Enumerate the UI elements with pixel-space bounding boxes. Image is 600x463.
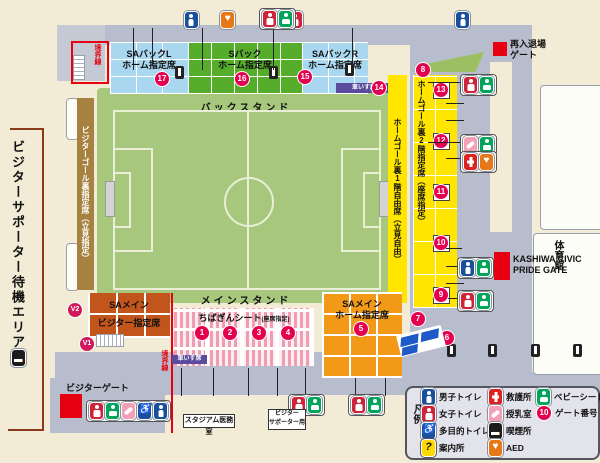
legend-label: 救護所 xyxy=(506,391,532,403)
building xyxy=(540,85,600,230)
legend-item: ベビーシート xyxy=(537,389,600,405)
connector-line xyxy=(446,248,462,249)
legend-item: 喫煙所 xyxy=(489,423,532,439)
toilet-babyseat-group xyxy=(460,74,497,96)
visitor-supporter-room: ビジターサポーター用 xyxy=(268,409,306,430)
connector-line xyxy=(152,28,153,66)
gate-door-icon xyxy=(573,344,582,357)
legend-label: ゲート番号 xyxy=(555,407,598,419)
goal-area-left xyxy=(113,172,131,228)
boundary-line-label-top: 境界線 xyxy=(92,44,102,65)
legend-label: ベビーシート xyxy=(554,391,600,403)
legend-item: AED xyxy=(489,440,524,456)
reentry-gate-marker xyxy=(493,42,507,56)
gate-badge-9: 9 xyxy=(434,288,448,302)
sa-main-visitor-label1: SAメイン xyxy=(88,298,170,311)
visitor-waiting-area-label: ビジターサポーター待機エリア xyxy=(8,140,27,365)
gate-badge-13: 13 xyxy=(434,83,448,97)
gate-badge-16: 16 xyxy=(235,72,249,86)
sa-main-visitor-label2: ビジター指定席 xyxy=(88,316,170,329)
home-goal-1f-label: ホームゴール裏1階自由席（立見自由） xyxy=(392,80,403,300)
gate-door-icon xyxy=(345,63,354,76)
mens-toilet-icon xyxy=(461,260,474,276)
boundary-line-label-bottom: 境界線 xyxy=(159,350,169,371)
goal-left xyxy=(105,181,115,217)
toilet-babyseat-group xyxy=(457,257,494,279)
gate-number-badge: 10 xyxy=(537,406,551,420)
pitch xyxy=(113,110,381,290)
connector-line xyxy=(305,368,306,396)
gate-badge-4: 4 xyxy=(281,326,295,340)
legend-item: 救護所 xyxy=(489,389,532,405)
first-aid-icon xyxy=(464,154,477,170)
gate-badge-v2: V2 xyxy=(68,303,82,317)
multipurpose-toilet-icon xyxy=(422,423,435,439)
gate-badge-1: 1 xyxy=(195,326,209,340)
mens-toilet-icon xyxy=(154,403,167,419)
connector-line xyxy=(181,368,182,396)
connector-line xyxy=(446,283,464,284)
information-icon xyxy=(422,440,435,456)
aed-icon xyxy=(480,154,493,170)
reentry-gate-label2: ゲート xyxy=(510,48,537,61)
multipurpose-toilet-icon xyxy=(138,403,151,419)
gate-badge-12: 12 xyxy=(434,134,448,148)
connector-line xyxy=(446,120,464,121)
pitch-center-circle xyxy=(224,177,274,227)
waiting-area-border xyxy=(42,128,44,431)
gate-door-icon xyxy=(488,344,497,357)
baby-seat-icon xyxy=(480,77,493,93)
firstaid-aed-group xyxy=(460,151,497,173)
legend-item: 10ゲート番号 xyxy=(537,406,598,420)
visitor-supporter-label2: サポーター用 xyxy=(269,420,305,426)
kashiwa-gate-label2: PRIDE GATE xyxy=(513,265,567,275)
connector-line xyxy=(428,142,462,143)
waiting-area-border-bottom xyxy=(8,429,44,431)
baby-seat-icon xyxy=(308,397,321,413)
baby-seat-icon xyxy=(368,397,381,413)
mens-toilet-icon xyxy=(456,12,469,28)
connector-line xyxy=(213,368,214,396)
legend-label: 授乳室 xyxy=(506,408,532,420)
toilet-babyseat-group xyxy=(457,290,494,312)
chibagin-label1: ちばぎんシート xyxy=(198,313,261,323)
stairs-main xyxy=(96,334,124,347)
gate-badge-v1: V1 xyxy=(80,337,94,351)
baby-seat-icon xyxy=(537,389,550,405)
nursing-room-icon xyxy=(489,406,502,422)
visitor-gate-icons xyxy=(86,400,171,422)
baby-seat-icon xyxy=(477,293,490,309)
baby-seat-icon xyxy=(106,403,119,419)
visitor-gate-marker xyxy=(60,394,82,418)
waiting-area-border-top xyxy=(10,128,44,130)
stadium-map: 境界線 ビジターサポーター待機エリア ビジターゴール裏指定席（立見指定） バック… xyxy=(0,0,600,463)
legend-label: 喫煙所 xyxy=(506,425,532,437)
gate-door-icon xyxy=(175,66,184,79)
gate-badge-2: 2 xyxy=(223,326,237,340)
toilet-babyseat-group xyxy=(348,394,385,416)
womens-toilet-icon xyxy=(352,397,365,413)
first-aid-icon xyxy=(489,389,502,405)
smoking-area-icon xyxy=(12,350,25,366)
legend-label: 女子トイレ xyxy=(439,408,482,420)
legend-item: 授乳室 xyxy=(489,406,532,422)
legend-item: 多目的トイレ xyxy=(422,423,490,439)
smoking-area-icon xyxy=(489,423,502,439)
connector-line xyxy=(352,28,353,70)
chibagin-label2: (座席指定) xyxy=(262,317,290,323)
nursing-room-icon xyxy=(122,403,135,419)
gate-badge-8: 8 xyxy=(416,63,430,77)
sa-main-home-label2: ホーム指定席 xyxy=(322,308,402,321)
legend-label: 案内所 xyxy=(439,442,465,454)
sa-back-r-label2: ホーム指定席 xyxy=(302,58,368,71)
chibagin-label: ちばぎんシート(座席指定) xyxy=(174,311,314,324)
womens-toilet-icon xyxy=(90,403,103,419)
gate-door-icon xyxy=(447,344,456,357)
kashiwa-gate-marker xyxy=(494,252,510,280)
aed-icon xyxy=(489,440,502,456)
gate-badge-17: 17 xyxy=(155,72,169,86)
canopy-panel xyxy=(421,328,439,342)
visitor-gate-label: ビジターゲート xyxy=(66,381,129,394)
connector-line xyxy=(273,30,274,70)
connector-line xyxy=(428,82,462,83)
legend-item: 女子トイレ xyxy=(422,406,482,422)
womens-toilet-icon xyxy=(464,77,477,93)
s-back-label2: ホーム指定席 xyxy=(188,58,302,71)
medical-room-label: スタジアム医務室 xyxy=(183,414,235,428)
connector-line xyxy=(248,368,249,396)
baby-seat-icon xyxy=(279,11,292,27)
aed-icon xyxy=(221,12,234,28)
gate-badge-7: 7 xyxy=(411,312,425,326)
gate-badge-5: 5 xyxy=(354,322,368,336)
legend-label: 男子トイレ xyxy=(439,391,482,403)
legend-item: 男子トイレ xyxy=(422,389,482,405)
womens-toilet-icon xyxy=(461,293,474,309)
section-visitor-goal-back: ビジターゴール裏指定席（立見指定） xyxy=(77,98,94,290)
gate-badge-15: 15 xyxy=(298,70,312,84)
legend-label: AED xyxy=(506,443,524,453)
connector-line xyxy=(202,28,203,70)
home-goal-2f-label: ホームゴール裏2階指定席（座席指定） xyxy=(416,80,427,305)
legend-item: 案内所 xyxy=(422,440,465,456)
gate-badge-14: 14 xyxy=(372,81,386,95)
mens-toilet-icon xyxy=(185,12,198,28)
connector-line xyxy=(385,378,386,396)
gate-badge-3: 3 xyxy=(252,326,266,340)
gate-badge-11: 11 xyxy=(434,185,448,199)
visitor-supporter-label1: ビジター xyxy=(275,411,299,417)
connector-line xyxy=(277,368,278,396)
womens-toilet-icon xyxy=(263,11,276,27)
gate-door-icon xyxy=(531,344,540,357)
womens-toilet-icon xyxy=(422,406,435,422)
kashiwa-gate-label1: KASHIWA CIVIC xyxy=(513,254,582,264)
connector-line xyxy=(133,28,134,70)
toilet-babyseat-group xyxy=(259,8,296,30)
legend-label: 多目的トイレ xyxy=(439,425,490,437)
mens-toilet-icon xyxy=(422,389,435,405)
connector-line xyxy=(446,103,464,104)
stairs-top-left xyxy=(73,55,85,80)
baby-seat-icon xyxy=(477,260,490,276)
wheelchair-strip-main: 車いす席 xyxy=(172,355,207,364)
